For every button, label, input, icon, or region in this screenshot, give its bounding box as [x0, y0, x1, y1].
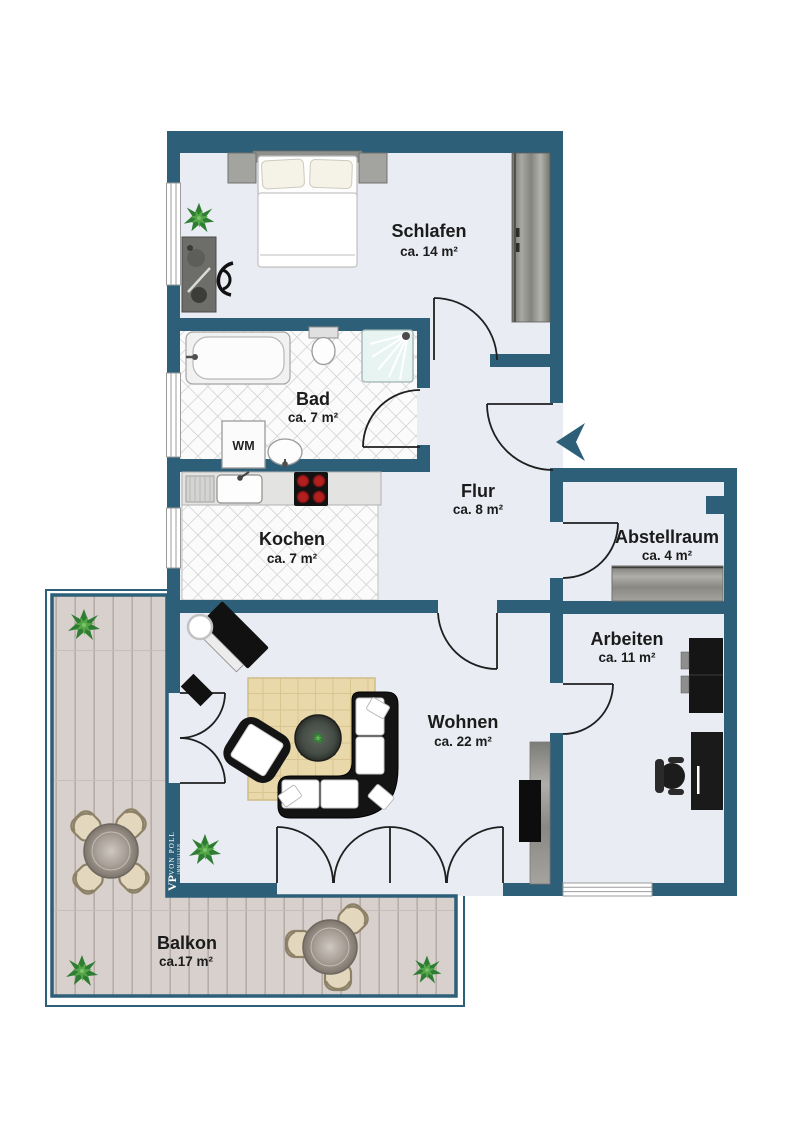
nightstand	[228, 153, 256, 183]
floor-plan: WM	[0, 0, 800, 1132]
nightstand	[359, 153, 387, 183]
storage-shelf	[612, 566, 723, 601]
room-area-balkon: ca.17 m²	[159, 954, 214, 969]
room-label-balkon: Balkon	[157, 933, 217, 953]
room-area-abstellraum: ca. 4 m²	[642, 548, 693, 563]
logo-immobilien-text: IMMOBILIEN	[177, 843, 181, 874]
bathtub	[186, 332, 290, 384]
kitchen-window	[167, 508, 181, 568]
office-desk	[691, 732, 723, 810]
shower	[362, 330, 413, 382]
room-area-arbeiten: ca. 11 m²	[598, 650, 656, 665]
room-area-flur: ca. 8 m²	[453, 502, 504, 517]
balcony-table	[303, 920, 357, 974]
room-label-flur: Flur	[461, 481, 495, 501]
wardrobe	[512, 153, 550, 322]
tv	[519, 780, 541, 842]
room-label-schlafen: Schlafen	[391, 221, 466, 241]
coffee-table	[295, 715, 341, 761]
balcony-table	[84, 824, 138, 878]
floor-lamp-icon	[188, 615, 212, 639]
dresser-desk	[182, 237, 216, 312]
room-label-wohnen: Wohnen	[428, 712, 499, 732]
logo-vp-text: VP	[165, 875, 179, 891]
room-label-bad: Bad	[296, 389, 330, 409]
bathroom-window	[167, 373, 181, 457]
room-area-kochen: ca. 7 m²	[267, 551, 318, 566]
room-label-kochen: Kochen	[259, 529, 325, 549]
stove	[294, 472, 328, 506]
room-area-wohnen: ca. 22 m²	[434, 734, 492, 749]
storage-furniture	[612, 566, 723, 601]
kitchen-furniture	[182, 472, 381, 506]
shower-head	[402, 332, 410, 340]
office-chair	[655, 757, 685, 795]
room-label-arbeiten: Arbeiten	[590, 629, 663, 649]
office-window	[563, 883, 652, 896]
kitchen-sink	[186, 472, 262, 503]
logo-vonpoll-text: VON POLL	[168, 831, 176, 875]
room-area-bad: ca. 7 m²	[288, 410, 339, 425]
room-label-abstellraum: Abstellraum	[615, 527, 719, 547]
monitor	[697, 766, 700, 794]
double-bed	[258, 156, 357, 267]
room-area-schlafen: ca. 14 m²	[400, 244, 458, 259]
washing-machine: WM	[222, 421, 265, 468]
bedroom-window	[167, 183, 181, 285]
washing-machine-label: WM	[232, 439, 254, 453]
